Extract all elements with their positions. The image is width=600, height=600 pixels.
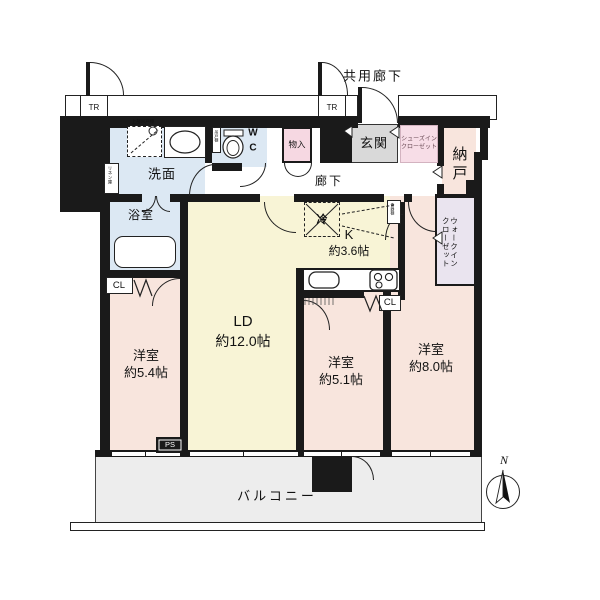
hallway-label: 廊下 [315, 174, 343, 190]
walk-in-closet-label: ウォークイン クローゼット [441, 202, 458, 282]
trunk-room-label: TR [327, 103, 338, 113]
wc-cabinet-label: 吊戸棚 [214, 130, 218, 142]
closet-label: CL [113, 280, 125, 292]
washroom-label: 洗面 [148, 167, 176, 184]
cupboard-label: 食器棚 [390, 203, 394, 215]
bedroom-mid-label: 洋室 約5.1帖 [319, 355, 363, 389]
detail-overlay [0, 0, 600, 600]
hall-storage-label: 物入 [288, 139, 305, 150]
bedroom-small-label: 洋室 約5.4帖 [124, 348, 168, 382]
balcony-label: バルコニー [237, 489, 317, 506]
bedroom-large-label: 洋室 約8.0帖 [409, 342, 453, 376]
refrigerator-label: 冷 [317, 213, 328, 227]
wc-label: W C [248, 127, 257, 156]
upper-cabinet-label: 上部吊戸棚 [132, 119, 155, 125]
washbasin-icon [170, 131, 200, 153]
living-dining-label: LD 約12.0帖 [215, 312, 270, 350]
entrance-label: 玄関 [360, 136, 388, 153]
washing-machine-icon [131, 127, 158, 153]
compass-north-label: N [500, 453, 508, 469]
compass-needle-icon [496, 470, 510, 503]
floor-plan: 共用廊下 TR TR 玄関 シューズイン クローゼット 納戸 ウォークイン クロ… [0, 0, 600, 600]
storage-room-label: 納戸 [450, 146, 467, 184]
stove-icon [370, 270, 397, 290]
trunk-room-label: TR [89, 103, 100, 113]
linen-closet-label: リネン庫 [107, 166, 112, 184]
folding-door-icon [134, 280, 382, 311]
kitchen-sink-icon [309, 272, 339, 288]
shoes-in-closet-label: シューズイン クローゼット [401, 137, 437, 152]
closet-label: CL [384, 297, 396, 309]
pipe-space-label: PS [165, 440, 175, 450]
bathroom-label: 浴室 [128, 208, 154, 224]
common-corridor-label: 共用廊下 [343, 69, 403, 86]
kitchen-label: K 約3.6帖 [329, 227, 370, 259]
drop-wall-hatch [305, 298, 333, 305]
toilet-icon [223, 130, 243, 158]
